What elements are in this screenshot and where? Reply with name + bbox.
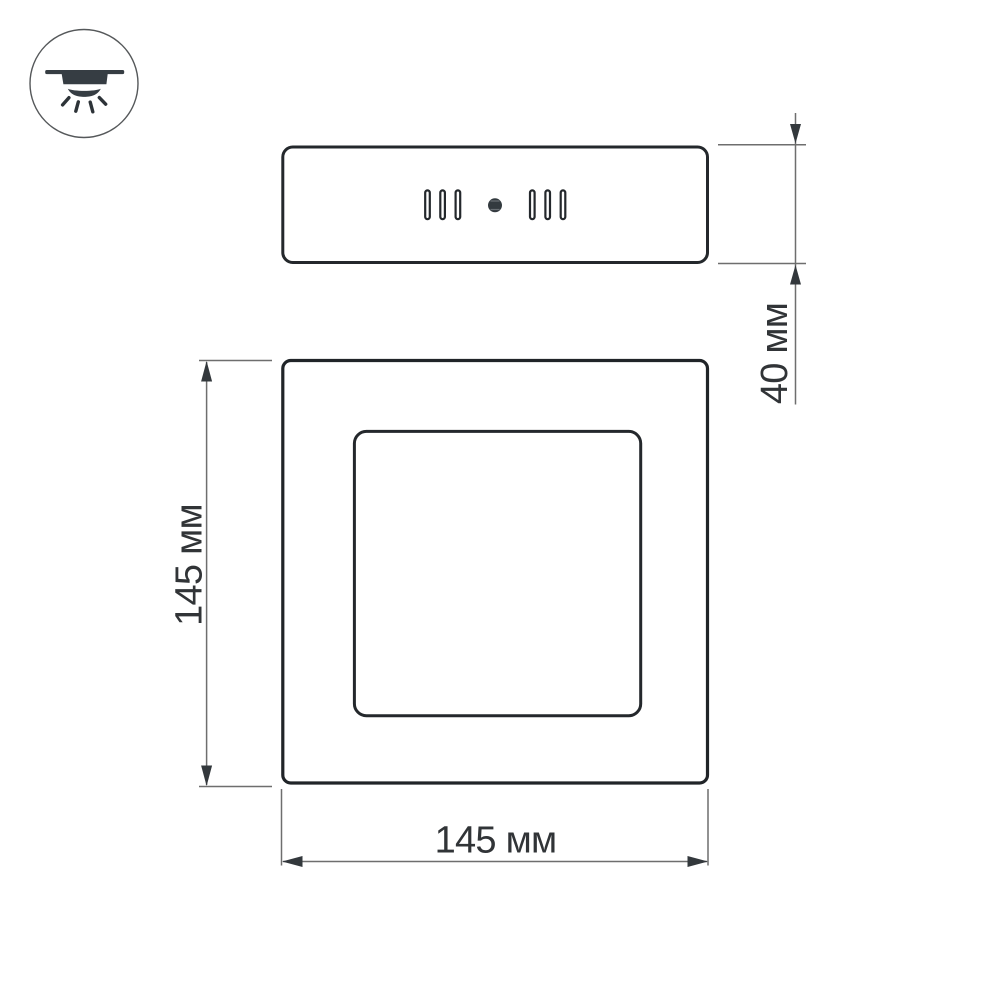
svg-text:145 мм: 145 мм: [435, 820, 557, 862]
svg-text:40 мм: 40 мм: [754, 303, 796, 404]
svg-text:145 мм: 145 мм: [169, 504, 211, 626]
